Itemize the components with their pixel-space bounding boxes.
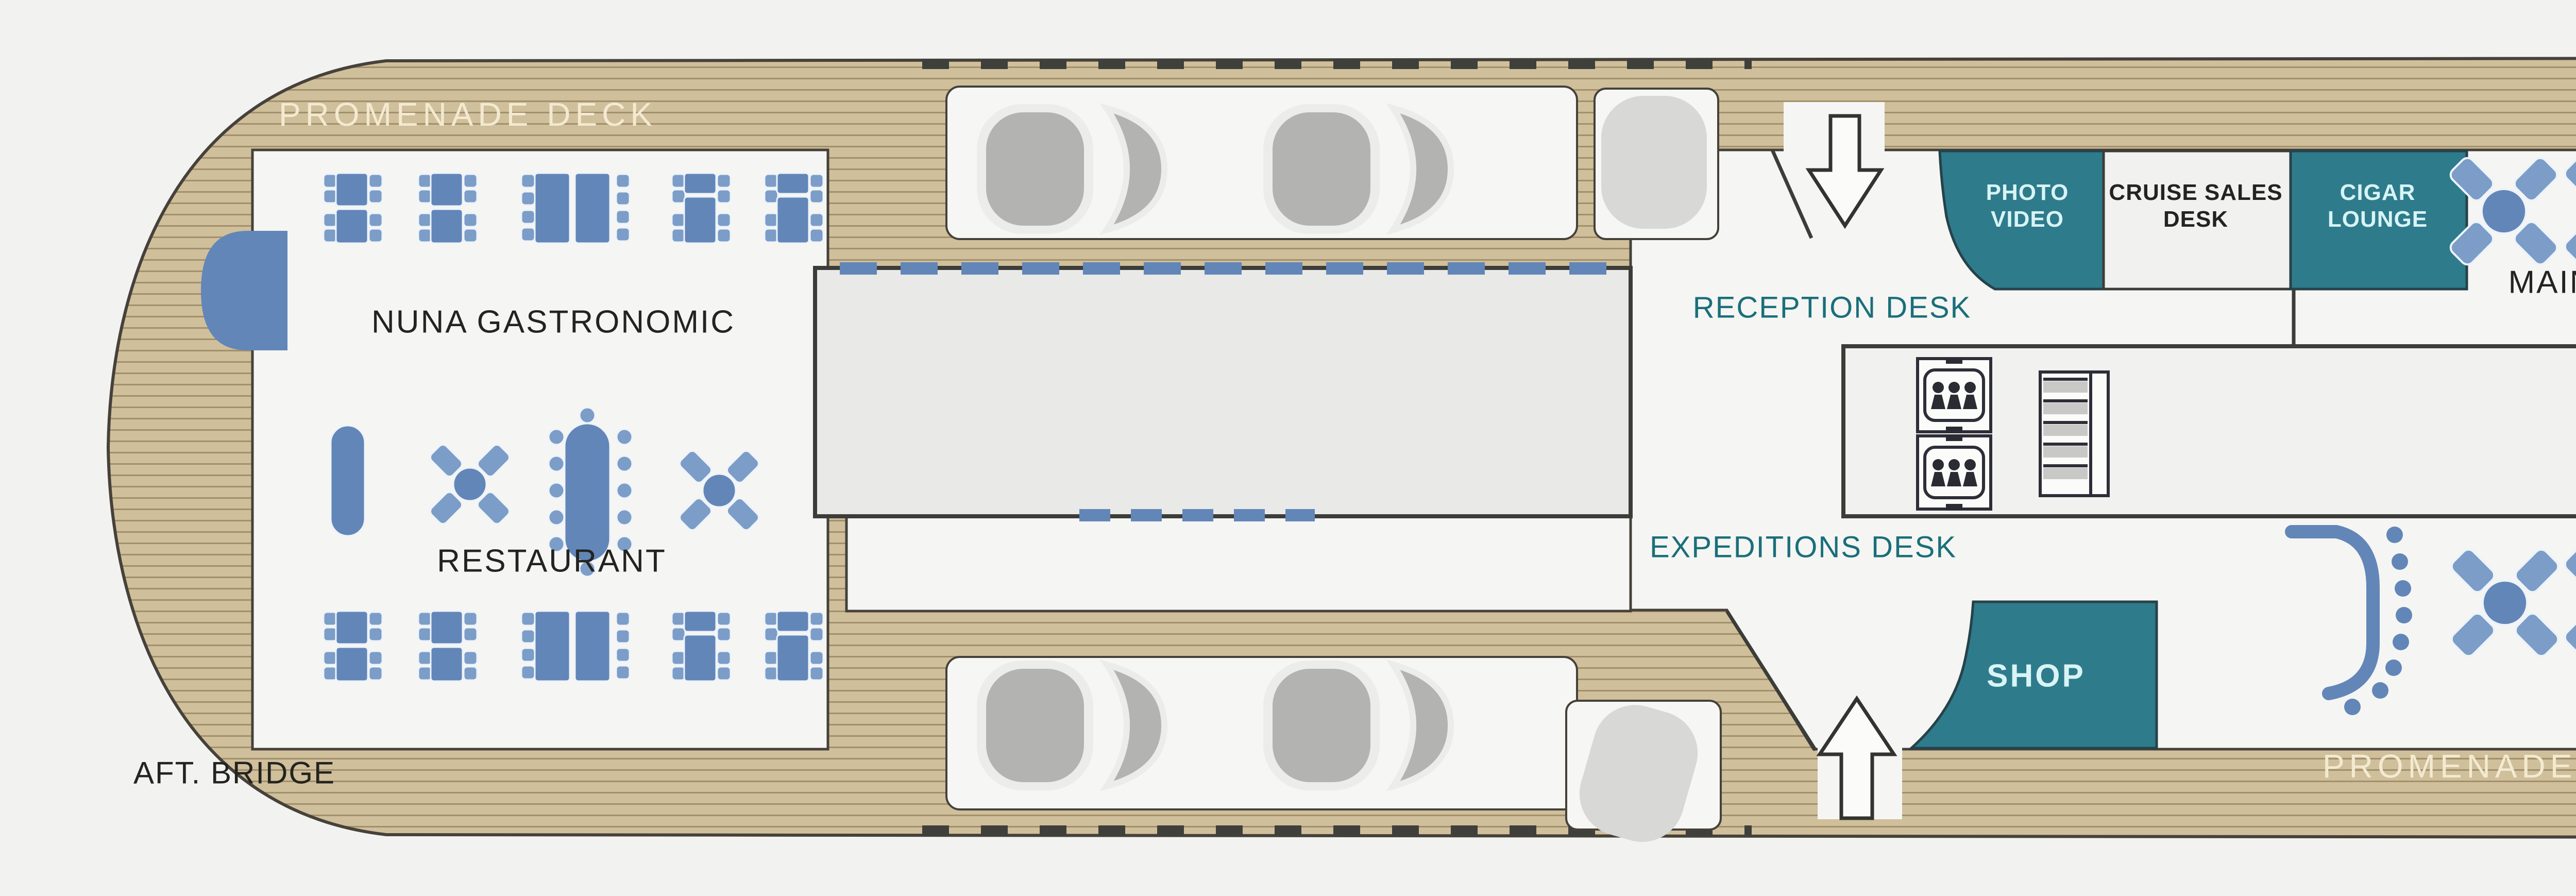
stairs-icon	[2040, 372, 2108, 496]
bar-stool	[2386, 527, 2403, 543]
bar-stool	[2344, 699, 2361, 715]
bar-stool	[2372, 682, 2388, 699]
bar-stool	[2392, 553, 2408, 570]
stern-structure	[201, 231, 287, 350]
cruise-sales-desk-label: CRUISE SALES DESK	[2109, 179, 2282, 233]
elevator-icon	[1918, 358, 1991, 433]
bar-stool	[2385, 660, 2402, 676]
restaurant-label: RESTAURANT	[437, 543, 667, 580]
bar-stool	[2395, 580, 2411, 597]
photo-video-label: PHOTO VIDEO	[1986, 179, 2069, 233]
lower-corridor	[846, 516, 1631, 611]
cigar-lounge-line2: LOUNGE	[2328, 206, 2428, 233]
zodiac-boats-pair	[977, 104, 1164, 234]
cigar-lounge-label: CIGAR LOUNGE	[2328, 179, 2428, 233]
promenade-deck-label-top: PROMENADE DECK	[279, 95, 657, 133]
bar-stool	[2393, 634, 2409, 650]
elevator-icon	[1918, 435, 1991, 510]
main-lounge-label: MAIN LOUNGE	[2508, 264, 2576, 301]
shop-label: SHOP	[1987, 658, 2086, 695]
zodiac-boats-pair	[977, 661, 1164, 790]
small-boat	[1601, 96, 1707, 229]
cruise-sales-line2: DESK	[2109, 206, 2282, 233]
expeditions-desk-label: EXPEDITIONS DESK	[1650, 530, 1957, 565]
aft-bridge-label: AFT. BRIDGE	[133, 755, 335, 791]
promenade-deck-label-bottom: PROMENADE DECK	[2323, 747, 2576, 785]
zodiac-boats-pair	[1263, 661, 1451, 790]
deck-plan: PROMENADE DECK PROMENADE DECK AFT. BRIDG…	[0, 0, 2576, 896]
nuna-gastronomic-label: NUNA GASTRONOMIC	[371, 304, 735, 341]
cigar-lounge-line1: CIGAR	[2328, 179, 2428, 206]
cruise-sales-line1: CRUISE SALES	[2109, 179, 2282, 206]
zodiac-boats-pair	[1263, 104, 1451, 234]
central-corridor-block	[815, 268, 1631, 516]
bar-stool	[2396, 607, 2412, 623]
photo-video-line2: VIDEO	[1986, 206, 2069, 233]
pill-table	[331, 426, 365, 536]
photo-video-line1: PHOTO	[1986, 179, 2069, 206]
reception-desk-label: RECEPTION DESK	[1693, 291, 1971, 325]
